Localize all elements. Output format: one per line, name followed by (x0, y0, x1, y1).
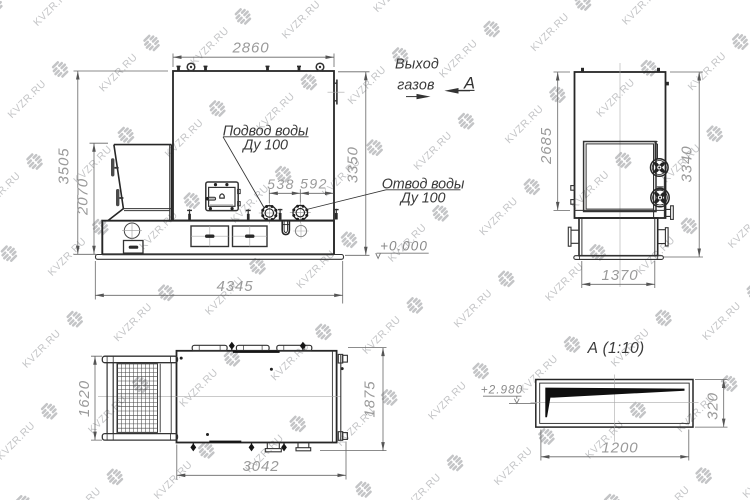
svg-text:Ду 100: Ду 100 (241, 138, 288, 154)
svg-text:1370: 1370 (602, 267, 639, 284)
svg-text:2070: 2070 (74, 178, 91, 216)
svg-text:Выход: Выход (395, 57, 439, 73)
svg-text:3505: 3505 (56, 148, 73, 185)
svg-text:3350: 3350 (345, 146, 362, 183)
svg-text:+0.000: +0.000 (380, 239, 428, 254)
svg-text:2685: 2685 (538, 127, 555, 165)
svg-text:1200: 1200 (602, 440, 639, 457)
svg-text:А (1:10): А (1:10) (587, 340, 645, 357)
svg-text:320: 320 (705, 392, 722, 420)
svg-text:+2.980: +2.980 (481, 383, 523, 397)
svg-text:2860: 2860 (232, 40, 270, 57)
svg-text:газов: газов (397, 78, 435, 94)
svg-text:3340: 3340 (679, 146, 696, 183)
svg-text:4345: 4345 (217, 278, 254, 295)
svg-text:538: 538 (267, 176, 295, 192)
svg-text:592: 592 (300, 176, 328, 192)
svg-text:Ду 100: Ду 100 (399, 191, 446, 207)
svg-text:А: А (463, 75, 475, 93)
svg-text:1875: 1875 (362, 381, 379, 418)
svg-text:3042: 3042 (243, 458, 280, 475)
svg-text:1620: 1620 (76, 380, 93, 417)
